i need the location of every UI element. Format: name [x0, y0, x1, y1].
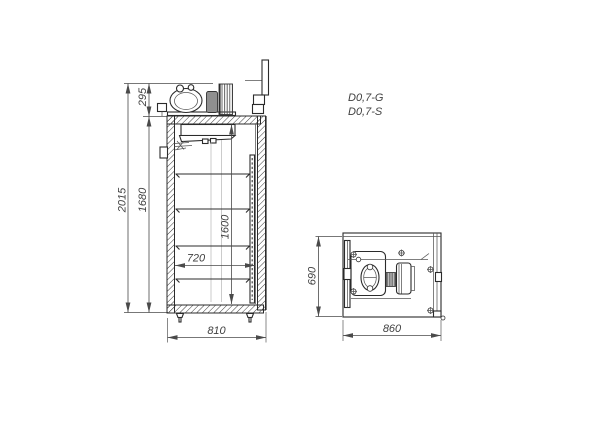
top-view: 690 860 — [306, 233, 445, 341]
dim-label-810: 810 — [207, 325, 226, 337]
pipe-2 — [175, 146, 193, 147]
shelf-4 — [176, 279, 251, 283]
feet — [177, 314, 254, 323]
compressor-fitting — [177, 85, 184, 92]
shelf-rail — [250, 155, 255, 303]
back-panel — [344, 241, 351, 308]
hinge-block-lower — [253, 105, 264, 114]
foot-right — [247, 314, 254, 323]
fan-coupling — [386, 273, 396, 287]
foot-left — [177, 314, 184, 323]
dim-label-1600: 1600 — [219, 214, 231, 239]
evaporator-box — [181, 125, 235, 136]
shelf-1 — [176, 174, 251, 178]
door-hinge-top-view — [436, 273, 442, 282]
corner-bracket — [434, 311, 442, 317]
model-label-g: D0,7-G — [348, 92, 384, 104]
hinge-block-upper — [254, 95, 265, 105]
shelf-3 — [176, 246, 251, 250]
technical-drawing-canvas: 2015 1680 295 1600 720 810 D0,7-G D0,7-S — [0, 0, 600, 424]
compressor-unit — [158, 84, 236, 116]
top-panel-section — [167, 116, 261, 124]
compressor-top-view — [361, 264, 379, 291]
left-wall-section — [167, 116, 175, 313]
condenser-coil — [219, 84, 233, 115]
dim-label-1680: 1680 — [137, 187, 149, 212]
evaporator-assembly — [175, 125, 236, 303]
dim-label-690: 690 — [306, 266, 318, 285]
shelf-2 — [176, 209, 251, 213]
floor-panel-section — [167, 305, 264, 313]
shelves — [176, 174, 251, 283]
cabinet-drawing: 2015 1680 295 1600 720 810 D0,7-G D0,7-S — [0, 0, 600, 424]
front-top-parts — [245, 60, 269, 114]
front-cover-strip — [262, 60, 269, 95]
compressor-fitting-2 — [188, 85, 194, 91]
model-labels: D0,7-G D0,7-S — [348, 92, 384, 118]
dim-label-2015: 2015 — [116, 187, 128, 213]
wall-mounted-box — [160, 147, 168, 158]
door-section — [258, 116, 266, 310]
fan-motor — [207, 92, 218, 113]
corner-foot — [441, 316, 445, 320]
model-label-s: D0,7-S — [348, 106, 383, 118]
dim-label-295: 295 — [137, 87, 149, 107]
dim-label-720: 720 — [187, 253, 206, 265]
pipe-3 — [175, 148, 187, 150]
dim-label-860: 860 — [383, 323, 402, 335]
side-section-view: 2015 1680 295 1600 720 810 — [116, 60, 268, 343]
drain-fitting-2 — [211, 139, 217, 144]
pipe-joint — [356, 257, 361, 262]
junction-box — [158, 104, 167, 112]
drain-fitting-1 — [203, 139, 209, 144]
